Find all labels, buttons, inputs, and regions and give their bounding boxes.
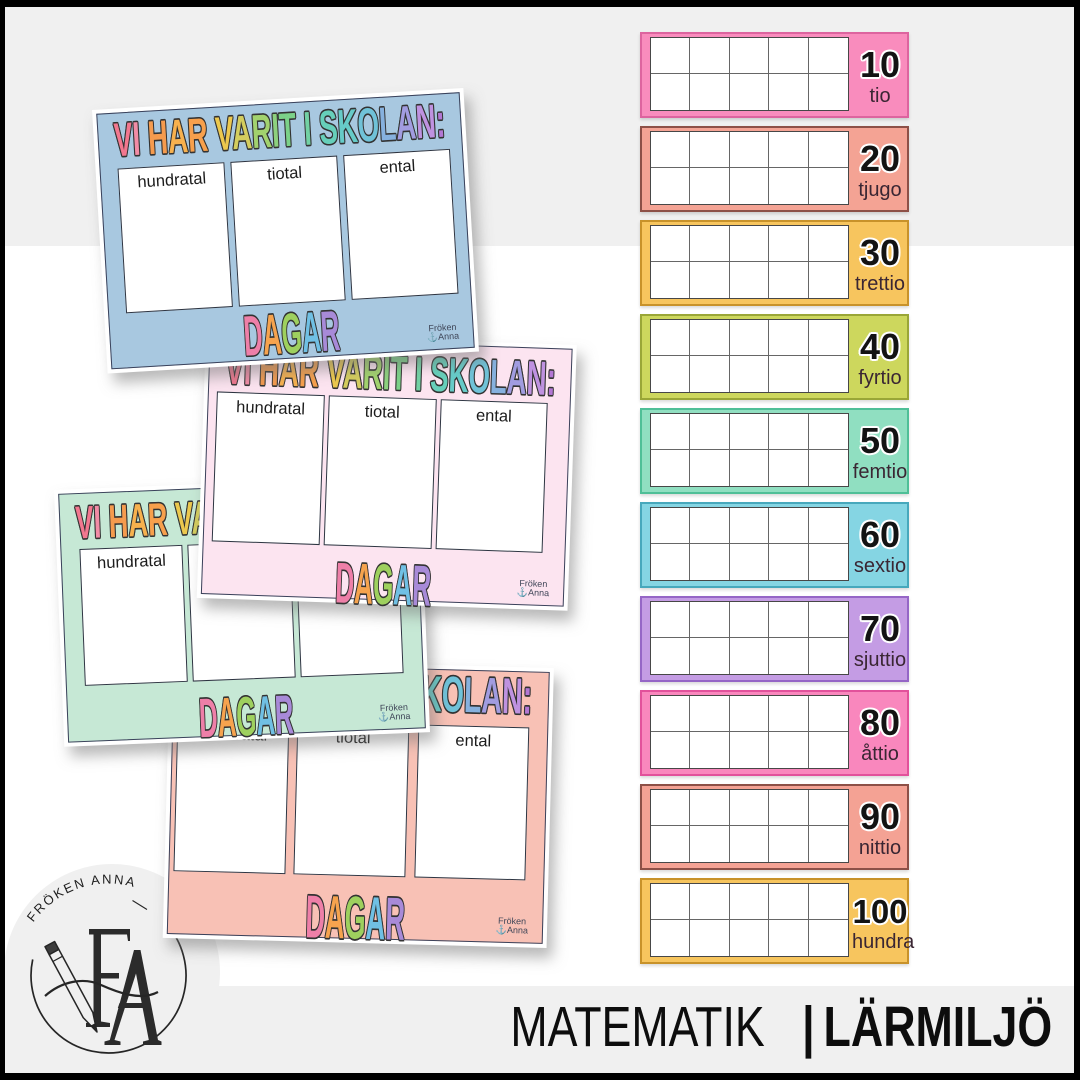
svg-text:FRÖKEN ANNA: FRÖKEN ANNA <box>24 871 138 924</box>
